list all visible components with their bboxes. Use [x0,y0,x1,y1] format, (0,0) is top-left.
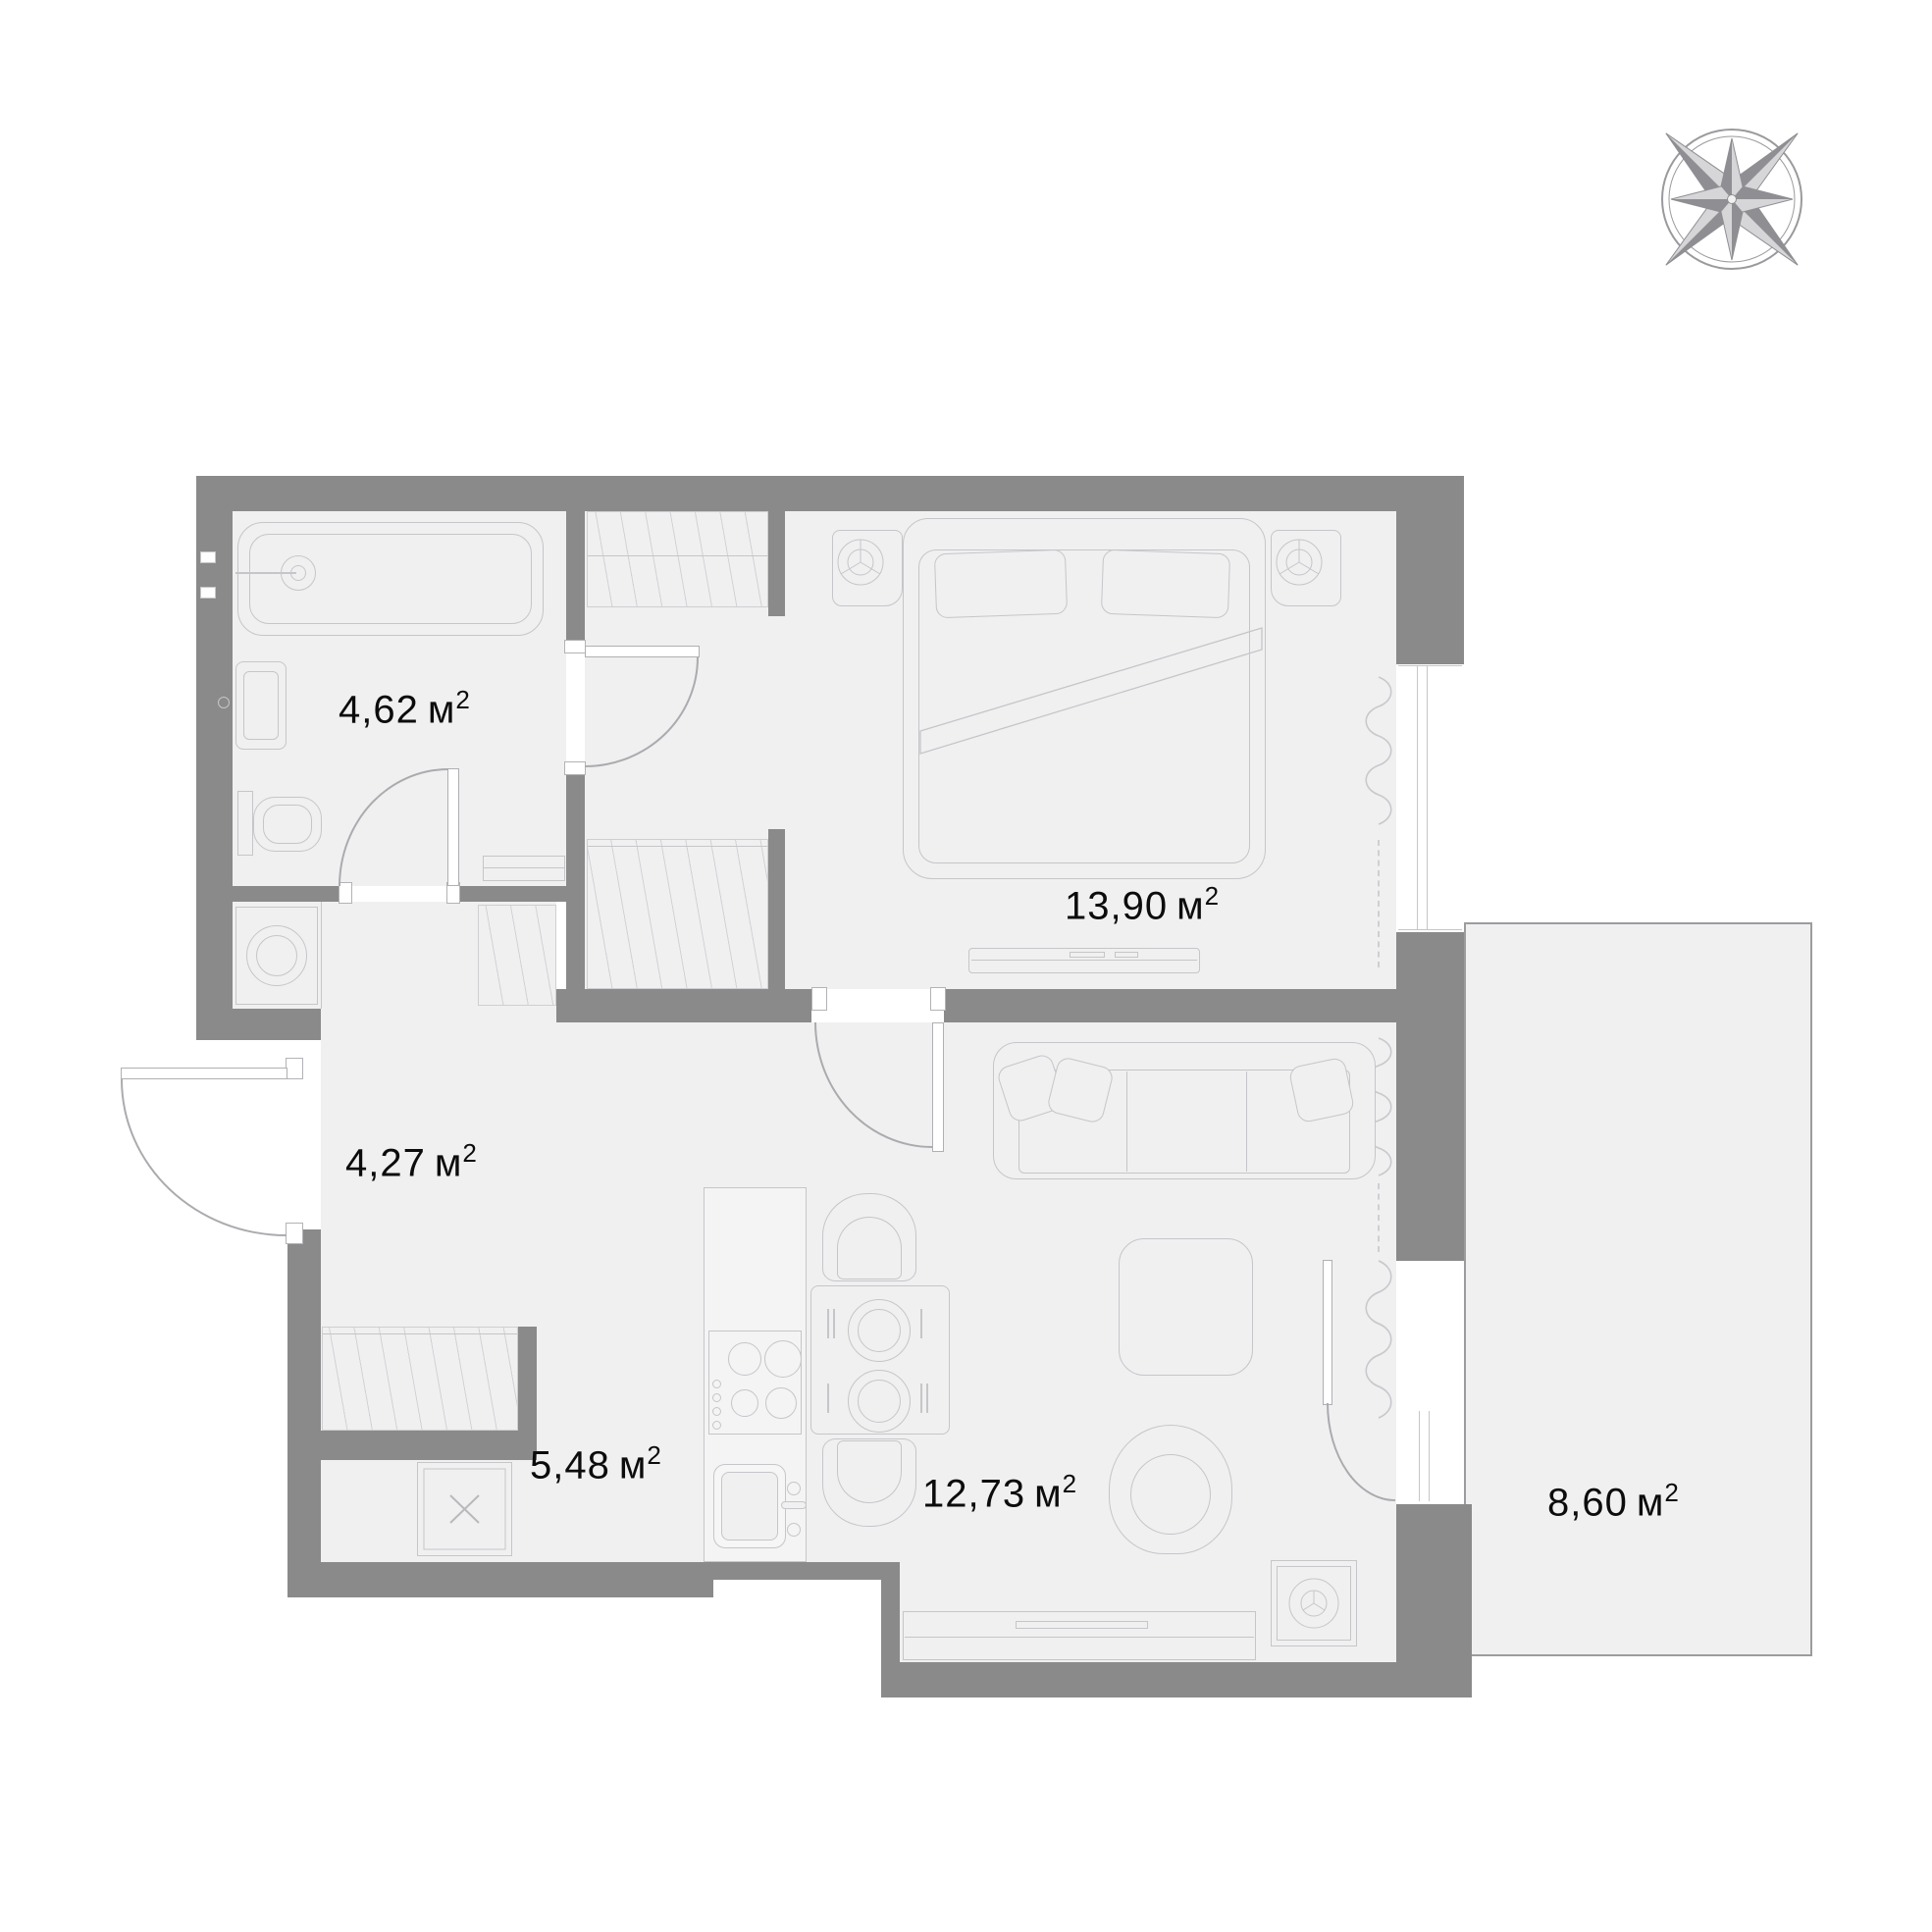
curtain-dash [1378,1183,1380,1252]
curtain-dash [1378,840,1380,967]
plate-inner [858,1380,901,1423]
sofa-divider [1246,1071,1247,1172]
room-label-living: 12,73 м2 [922,1469,1077,1516]
lamp-icon [1275,538,1324,587]
room-label-bedroom: 13,90 м2 [1065,881,1220,928]
cooktop-knob [712,1407,721,1416]
cutlery [920,1384,922,1413]
plate-inner [858,1309,901,1352]
kitchen-tap [787,1482,801,1495]
kitchen-tap-handle [781,1501,807,1509]
room-label-kitchen: 5,48 м2 [530,1440,662,1488]
cutlery [827,1309,829,1338]
kitchen-tap [787,1523,801,1537]
floor-plan: 4,62 м2 13,90 м2 4,27 м2 5,48 м2 12,73 м… [0,0,1932,1932]
rug [1119,1238,1253,1376]
kitchen-sink-basin-inner [721,1472,778,1540]
cooktop-knob [712,1421,721,1430]
curtain-squiggle [1366,1261,1391,1418]
sofa-divider [1126,1071,1127,1172]
sofa-pillow [1288,1057,1356,1124]
cooktop-knob [712,1380,721,1388]
cutlery [920,1309,922,1338]
fan-icon [1288,1578,1339,1629]
cutlery [833,1309,835,1338]
cooktop-knob [712,1393,721,1402]
cutlery [827,1384,829,1413]
cutlery [926,1384,928,1413]
dining-chair-bottom-inner [837,1440,902,1503]
lamp-icon [836,538,885,587]
dresser-item [1115,952,1138,958]
tv [1016,1621,1148,1629]
curtain-squiggle [1366,677,1391,824]
burner [731,1389,758,1417]
bedroom-dresser-line [971,960,1197,961]
tv-console [903,1611,1256,1660]
burner [765,1387,797,1419]
dresser-item [1070,952,1105,958]
room-label-hallway: 4,27 м2 [345,1138,478,1185]
tv-console-line [905,1637,1254,1638]
room-label-balcony: 8,60 м2 [1547,1478,1680,1525]
armchair-cushion [1130,1454,1211,1535]
compass-rose-icon [1619,86,1845,312]
dining-chair-top-inner [837,1217,902,1279]
room-label-bathroom: 4,62 м2 [339,685,471,732]
burner [764,1340,802,1378]
burner [728,1342,761,1376]
appliance-x-icon [417,1462,512,1556]
